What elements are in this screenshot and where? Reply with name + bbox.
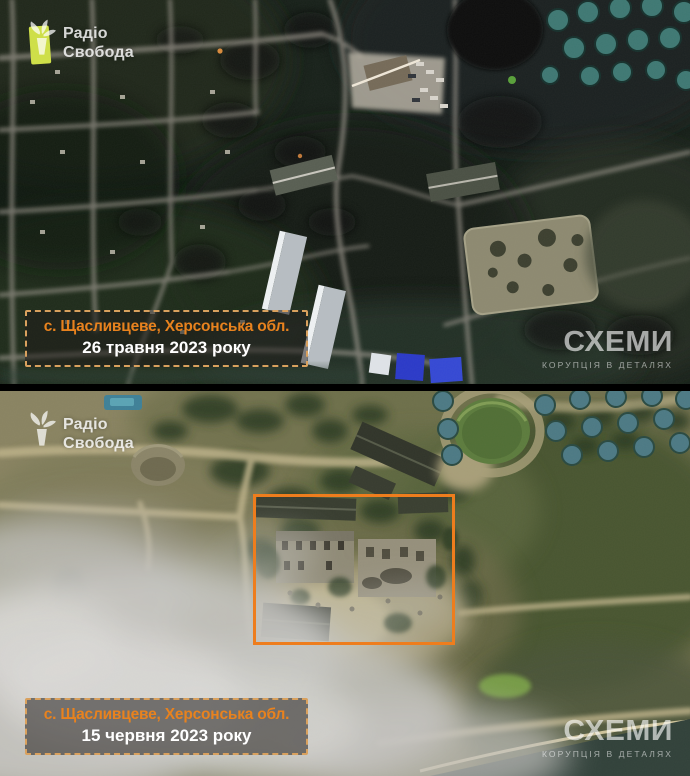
logo-text: Радіо Свобода <box>63 416 134 454</box>
watermark-subtitle: КОРУПЦІЯ В ДЕТАЛЯХ <box>542 360 673 370</box>
schemes-watermark: СХЕМИ КОРУПЦІЯ В ДЕТАЛЯХ <box>542 717 673 759</box>
radio-svoboda-logo: Радіо Свобода <box>26 407 134 454</box>
panel-divider <box>0 384 690 391</box>
logo-line1: Радіо <box>63 25 134 44</box>
satellite-comparison-graphic: Радіо Свобода с. Щасливцеве, Херсонська … <box>0 0 690 776</box>
logo-line1: Радіо <box>63 416 134 435</box>
torch-icon <box>26 407 56 451</box>
highlight-rectangle <box>253 494 455 645</box>
watermark-title: СХЕМИ <box>542 328 673 357</box>
logo-text: Радіо Свобода <box>63 25 134 63</box>
date-text: 15 червня 2023 року <box>33 726 300 746</box>
location-text: с. Щасливцеве, Херсонська обл. <box>33 318 300 336</box>
date-text: 26 травня 2023 року <box>33 338 300 358</box>
radio-svoboda-logo: Радіо Свобода <box>26 16 134 63</box>
satellite-panel-after: Радіо Свобода с. Щасливцеве, Херсонська … <box>0 391 690 776</box>
watermark-subtitle: КОРУПЦІЯ В ДЕТАЛЯХ <box>542 749 673 759</box>
watermark-title: СХЕМИ <box>542 717 673 746</box>
location-text: с. Щасливцеве, Херсонська обл. <box>33 706 300 724</box>
location-date-label: с. Щасливцеве, Херсонська обл. 26 травня… <box>25 310 308 367</box>
schemes-watermark: СХЕМИ КОРУПЦІЯ В ДЕТАЛЯХ <box>542 328 673 370</box>
logo-line2: Свобода <box>63 435 134 454</box>
torch-icon <box>26 16 56 60</box>
satellite-panel-before: Радіо Свобода с. Щасливцеве, Херсонська … <box>0 0 690 384</box>
location-date-label: с. Щасливцеве, Херсонська обл. 15 червня… <box>25 698 308 755</box>
logo-line2: Свобода <box>63 44 134 63</box>
